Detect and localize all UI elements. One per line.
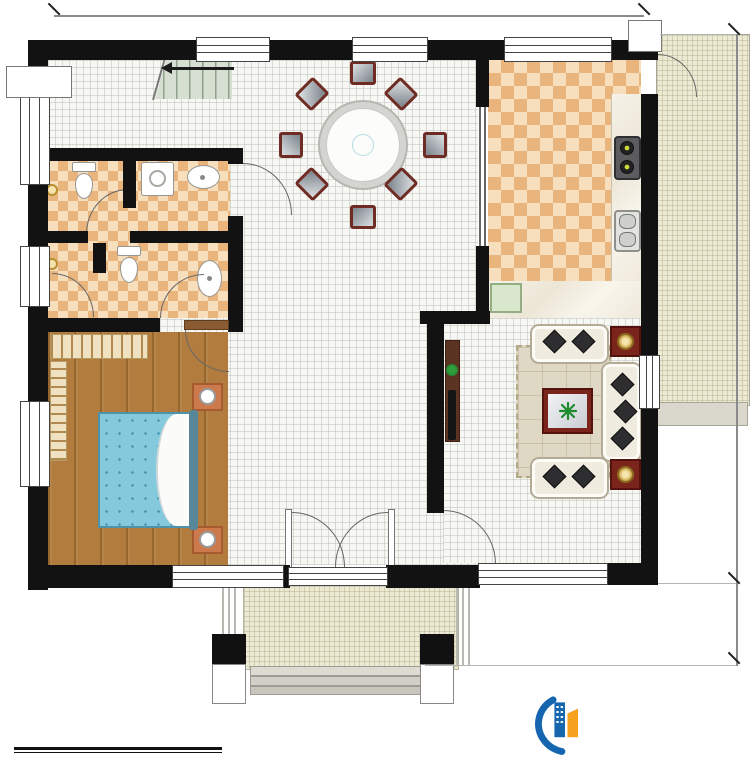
dimension-tick bbox=[638, 3, 651, 16]
wall bbox=[228, 216, 243, 332]
laundry-sink-drain bbox=[200, 175, 205, 180]
extension-line bbox=[660, 34, 736, 35]
flue-box bbox=[6, 66, 72, 98]
entry-door-leaf bbox=[285, 509, 292, 568]
lazy-susan bbox=[352, 134, 374, 156]
window bbox=[172, 565, 284, 588]
window bbox=[20, 93, 50, 185]
porch-step bbox=[250, 676, 422, 686]
tv-icon bbox=[448, 390, 456, 440]
dimension-label-right bbox=[714, 295, 734, 355]
extension-line bbox=[425, 665, 736, 666]
window bbox=[639, 355, 660, 409]
room-label-bedroom bbox=[98, 386, 183, 404]
washing-machine-door bbox=[149, 170, 166, 187]
refrigerator-icon bbox=[490, 283, 522, 313]
plant-icon bbox=[558, 401, 578, 421]
room-label-laundry bbox=[146, 200, 226, 218]
floor-kitchen bbox=[488, 60, 613, 283]
wall bbox=[28, 318, 160, 332]
wall bbox=[426, 40, 506, 60]
bath-sink-drain bbox=[207, 276, 212, 281]
room-label-reception bbox=[444, 478, 549, 496]
room-label-public-bath bbox=[28, 202, 98, 220]
wall bbox=[130, 231, 228, 243]
dimension-label-porch bbox=[713, 583, 731, 639]
window bbox=[20, 246, 50, 307]
room-label-stairwell bbox=[140, 102, 218, 120]
platform-lower-step bbox=[656, 402, 748, 426]
porch-step bbox=[250, 686, 422, 695]
stair-direction-line bbox=[172, 67, 234, 70]
room-label-inner-bath bbox=[94, 270, 170, 288]
room-label-dining bbox=[276, 220, 361, 238]
sofa-top bbox=[530, 324, 609, 364]
wall bbox=[93, 243, 106, 273]
brand-logo-icon bbox=[532, 694, 588, 758]
dining-chair bbox=[350, 61, 376, 85]
bed-headboard bbox=[189, 410, 198, 530]
entry-door-leaf bbox=[388, 509, 395, 568]
kitchen-sink-basin bbox=[619, 232, 636, 247]
bedroom-door-leaf bbox=[184, 320, 229, 330]
porch-column-base bbox=[212, 664, 246, 704]
wardrobe bbox=[50, 334, 148, 359]
shoe-cabinet bbox=[50, 361, 67, 461]
dimension-tick bbox=[48, 3, 61, 16]
wall bbox=[228, 148, 243, 164]
wall bbox=[28, 40, 198, 60]
wall bbox=[641, 94, 658, 357]
dining-chair bbox=[279, 132, 303, 158]
porch-column bbox=[212, 634, 246, 664]
title-underline bbox=[14, 747, 222, 753]
kitchen-sliding-door bbox=[484, 107, 486, 247]
porch-column-base bbox=[420, 664, 454, 704]
dimension-tick bbox=[728, 652, 741, 665]
room-label-kitchen bbox=[508, 204, 593, 222]
toilet-icon bbox=[117, 246, 141, 256]
window bbox=[352, 37, 428, 62]
entry-threshold bbox=[288, 567, 388, 586]
floor-plan-sheet bbox=[0, 0, 750, 768]
table-lamp-icon bbox=[617, 333, 634, 350]
wall bbox=[386, 565, 480, 588]
stove-burner bbox=[620, 160, 634, 174]
room-label-drying-platform bbox=[628, 248, 750, 266]
wall bbox=[48, 148, 243, 161]
dimension-line-right bbox=[736, 34, 738, 666]
toilet-icon bbox=[72, 162, 96, 172]
floor-kitchen-ext bbox=[613, 60, 641, 94]
window bbox=[196, 37, 270, 62]
room-label-living bbox=[296, 404, 381, 422]
wall bbox=[641, 407, 658, 585]
wall bbox=[476, 246, 489, 318]
dimension-line-top bbox=[54, 15, 644, 17]
nightstand-lamp-icon bbox=[199, 388, 216, 405]
wall bbox=[123, 160, 136, 208]
window bbox=[478, 563, 608, 585]
wall bbox=[427, 311, 444, 513]
wall bbox=[268, 40, 354, 60]
platform-landing bbox=[628, 20, 662, 52]
porch-rail bbox=[456, 588, 473, 666]
stair-arrow-icon bbox=[161, 62, 172, 74]
porch-step bbox=[250, 666, 422, 676]
porch-column bbox=[420, 634, 454, 664]
window bbox=[504, 37, 612, 62]
nightstand-lamp-icon bbox=[199, 531, 216, 548]
window bbox=[20, 401, 50, 487]
table-lamp-icon bbox=[617, 466, 634, 483]
kitchen-sliding-door bbox=[479, 107, 481, 247]
wall bbox=[48, 231, 88, 243]
bed-sheet bbox=[156, 414, 190, 526]
plant-pot-icon bbox=[446, 364, 458, 376]
dining-chair bbox=[423, 132, 447, 158]
wall bbox=[28, 565, 174, 588]
wall bbox=[476, 43, 489, 107]
stove-burner bbox=[620, 141, 634, 155]
kitchen-sink-basin bbox=[619, 214, 636, 229]
